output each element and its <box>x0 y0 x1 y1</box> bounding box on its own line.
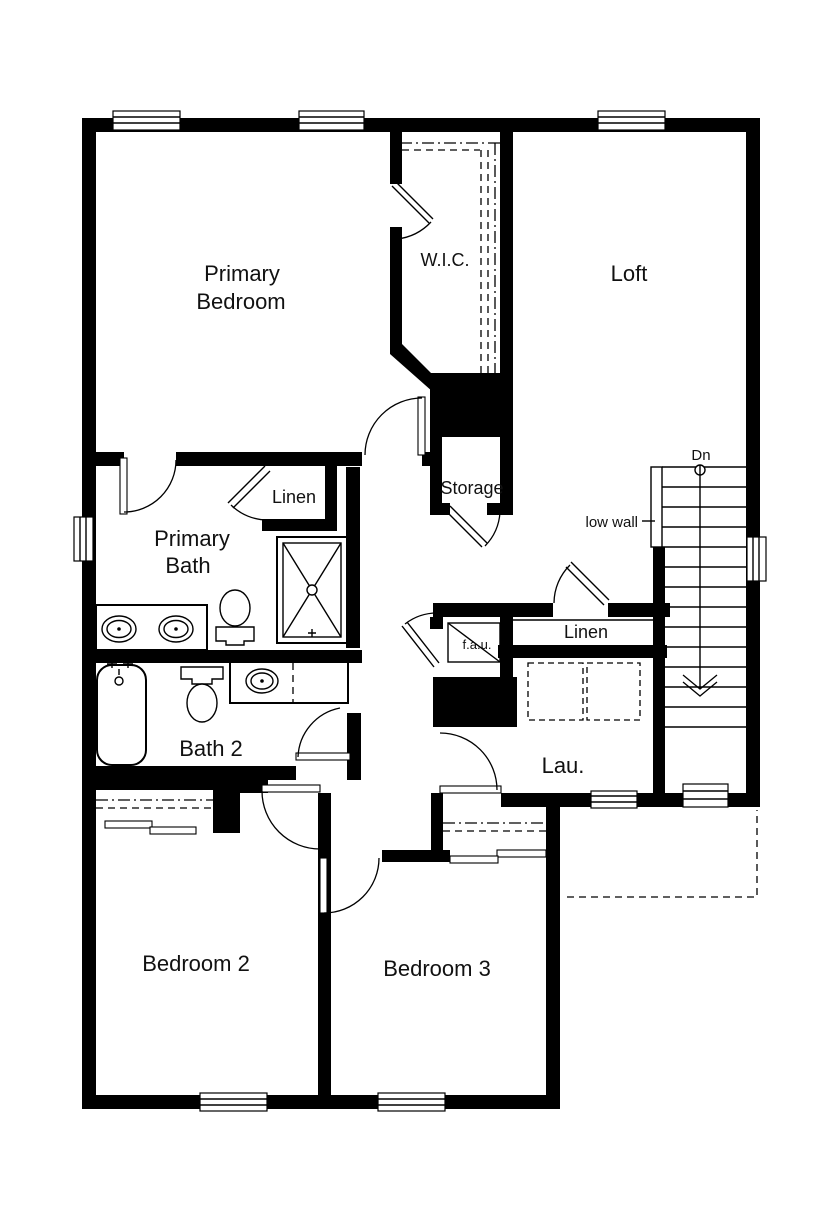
toilet-icon <box>216 590 254 645</box>
storage-label: Storage <box>440 478 503 498</box>
primary-bedroom-label: Bedroom <box>196 289 285 314</box>
bedroom3-label: Bedroom 3 <box>383 956 491 981</box>
window-icon <box>747 537 766 581</box>
bedroom3-closet-slider <box>450 856 498 863</box>
linen-bath-label: Linen <box>272 487 316 507</box>
fau-label: f.a.u. <box>463 637 492 652</box>
bedroom3-closet-slider <box>497 850 546 857</box>
storage-door <box>445 506 487 547</box>
laundry-hall-door <box>440 786 501 793</box>
dryer-icon <box>587 663 640 720</box>
shower-icon <box>277 537 347 643</box>
bedroom2-door <box>262 785 320 792</box>
low-wall-label: low wall <box>585 514 638 531</box>
linen-hall-door <box>566 562 609 605</box>
washer-icon <box>528 663 583 720</box>
window-icon <box>591 791 637 808</box>
bath2-label: Bath 2 <box>179 736 243 761</box>
double-vanity-icon <box>96 605 207 650</box>
window-icon <box>299 111 364 130</box>
window-icon <box>598 111 665 130</box>
linen-hall-label: Linen <box>564 622 608 642</box>
bathtub-icon <box>97 660 146 765</box>
window-icon <box>683 784 728 807</box>
bedroom2-closet-slider <box>150 827 196 834</box>
laundry-label: Lau. <box>542 753 585 778</box>
floor-plan: Primary Bedroom W.I.C. Loft Storage Line… <box>0 0 840 1228</box>
window-icon <box>378 1093 445 1111</box>
bath2-door <box>296 753 350 760</box>
loft-label: Loft <box>611 261 648 286</box>
primary-bedroom-door <box>418 397 425 455</box>
low-wall-rail <box>651 467 662 547</box>
window-icon <box>113 111 180 130</box>
floor-plan-drawing: Primary Bedroom W.I.C. Loft Storage Line… <box>0 0 840 1228</box>
wic-label: W.I.C. <box>421 250 470 270</box>
linen-bath-door <box>228 466 270 508</box>
stairs-down-label: Dn <box>691 447 710 464</box>
roof-below-outline <box>567 810 757 897</box>
window-icon <box>200 1093 267 1111</box>
toilet-icon <box>181 667 223 722</box>
bedroom2-label: Bedroom 2 <box>142 951 250 976</box>
sink-icon <box>230 662 348 703</box>
primary-bath-label: Bath <box>165 553 210 578</box>
wic-door <box>392 182 433 223</box>
bedroom2-closet-slider <box>105 821 152 828</box>
primary-bath-label: Primary <box>154 526 230 551</box>
primary-bedroom-label: Primary <box>204 261 280 286</box>
bedroom3-door <box>320 858 327 913</box>
primary-bath-door <box>120 458 127 514</box>
window-icon <box>74 517 93 561</box>
